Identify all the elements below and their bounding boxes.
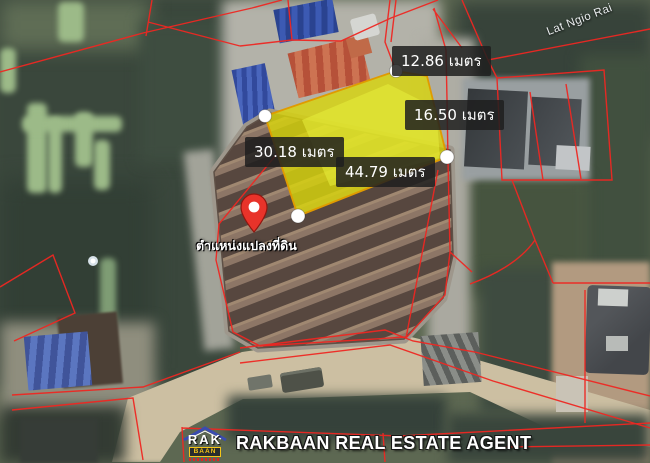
building-dark-roof-bottom-left <box>20 418 98 463</box>
terrain-orchard-strip <box>58 2 84 42</box>
building-house-bottom-center <box>420 332 481 386</box>
terrain-orchard-strip <box>22 116 122 132</box>
measurement-label-left: 30.18 เมตร <box>245 137 344 167</box>
building-blue-roof-house-bottom-left <box>24 331 92 390</box>
agency-logo: RAK BAAN <box>180 425 230 462</box>
terrain-road-right-vertical <box>428 160 470 355</box>
measurement-label-bottom: 44.79 เมตร <box>336 157 435 187</box>
measurement-label-top: 12.86 เมตร <box>392 46 491 76</box>
building-shed-bottom-right <box>556 376 588 412</box>
terrain-orchard-strip <box>0 48 16 93</box>
agency-name: RAKBAAN REAL ESTATE AGENT <box>236 433 531 454</box>
logo-text-baan: BAAN <box>189 447 221 457</box>
measurement-label-right: 16.50 เมตร <box>405 100 504 130</box>
building-house-bottom-right-roof-part <box>606 336 628 351</box>
building-warehouse-annex <box>555 145 590 171</box>
satellite-map-canvas: 12.86 เมตร 16.50 เมตร 30.18 เมตร 44.79 เ… <box>0 0 650 463</box>
logo-red-tagline <box>189 458 221 461</box>
building-house-bottom-right-roof-part <box>598 288 629 306</box>
terrain-orchard-strip <box>94 140 110 190</box>
watermark: RAK BAAN RAKBAAN REAL ESTATE AGENT <box>180 425 531 462</box>
vertex-dot <box>291 209 305 223</box>
pin-caption: ตำแหน่งแปลงที่ดิน <box>196 236 297 256</box>
location-pin-icon <box>241 194 267 232</box>
terrain-trees-right <box>580 55 650 270</box>
terrain-orchard-strip <box>48 118 62 193</box>
terrain-orchard-strip <box>75 112 93 167</box>
logo-text-rak: RAK <box>180 432 230 447</box>
